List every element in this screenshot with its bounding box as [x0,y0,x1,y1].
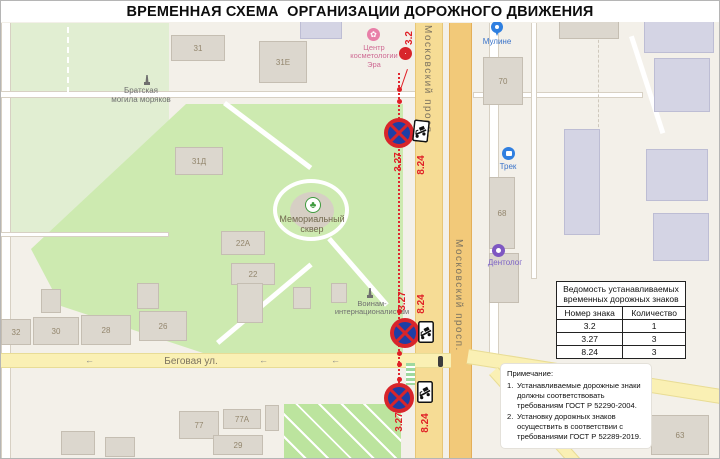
poi-trek-label: Трек [491,163,525,172]
page-title: ВРЕМЕННАЯ СХЕМА ОРГАНИЗАЦИИ ДОРОЖНОГО ДВ… [1,1,719,22]
route-dot [397,99,402,104]
sign-label-8-24: 8.24 [420,406,432,440]
sign-leader-line [400,69,408,89]
street-label-moskovsky-bottom: Московский просп. [453,239,464,357]
direction-arrow: ← [85,355,94,365]
poi-bratskaya-label: Братская могила моряков [91,87,191,105]
note-item: 2. Установку дорожных знаков осуществить… [507,412,645,442]
building-77a: 77А [223,409,261,429]
building-68: 68 [489,177,515,249]
transport-icon [502,147,515,160]
table-title: Ведомость устанавливаемых временных доро… [557,282,686,307]
note-item: 1. Устанавливаемые дорожные знаки должны… [507,381,645,411]
table-row: 3.21 [557,320,686,333]
minor-road-left [1,23,11,458]
building [41,289,61,313]
route-dot [397,351,402,356]
direction-arrow: ← [331,355,340,365]
cemetery-south-road [1,232,169,237]
building-31e: 31Е [259,41,307,83]
building [646,149,708,201]
building-32: 32 [1,319,31,345]
building [653,213,709,261]
building-26: 26 [139,311,187,341]
minor-road-east-2 [531,23,537,279]
building [293,287,311,309]
road-sign-3-27-icon [384,383,414,413]
building-29: 29 [213,435,263,455]
direction-arrow: ← [259,355,268,365]
traffic-scheme-map: Московский просп. Московский просп. Бего… [0,0,720,459]
building [564,129,600,235]
building-70: 70 [483,57,523,105]
table-row: 3.273 [557,333,686,346]
road-sign-3-2-icon [399,47,412,60]
sign-label-3-27: 3.27 [397,284,409,318]
road-sign-8-24-icon [412,119,430,143]
building-63: 63 [651,415,709,455]
route-dot [397,87,402,92]
notes-box: Примечание: 1. Устанавливаемые дорожные … [501,364,651,448]
building-30: 30 [33,317,79,345]
building-31d: 31Д [175,147,223,175]
building-22a: 22А [221,231,265,255]
building-31: 31 [171,35,225,61]
minor-road-dashed [598,25,599,137]
road-sign-8-24-icon [418,321,434,343]
crosswalk-strip [406,363,415,385]
poi-memorial-square-label: Мемориальный сквер [263,214,361,234]
building [137,283,159,309]
building [654,58,710,112]
road-sign-8-24-icon [417,381,433,403]
sign-label-8-24: 8.24 [416,148,428,182]
sign-label-8-24: 8.24 [416,287,428,321]
poi-dentolog-label: Дентолог [482,259,528,268]
road-sign-3-27-icon [390,318,420,348]
notes-heading: Примечание: [507,369,645,379]
building-28: 28 [81,315,131,345]
cemetery-path [67,27,69,93]
traffic-light-icon [438,356,443,367]
building [105,437,135,457]
building-22: 22 [231,263,275,285]
building [644,19,714,53]
sign-label-3-27: 3.27 [393,145,405,179]
building [237,283,263,323]
table-col-qty: Количество [623,307,686,320]
health-icon [492,244,505,257]
table-row: 8.243 [557,346,686,359]
route-dot [397,362,402,367]
building [265,405,279,431]
table-col-sign: Номер знака [557,307,623,320]
route-dot [397,377,402,382]
road-sign-3-27-icon [384,118,414,148]
tree-icon: ♣ [305,197,321,213]
building [61,431,95,455]
minor-road-north [1,91,419,98]
map-pin-icon [491,21,503,33]
poi-muline-label: Мулине [469,38,525,47]
street-label-begovaya: Беговая ул. [151,356,231,367]
cosmetics-icon: ✿ [367,28,380,41]
signs-summary-table: Ведомость устанавливаемых временных доро… [556,281,686,359]
